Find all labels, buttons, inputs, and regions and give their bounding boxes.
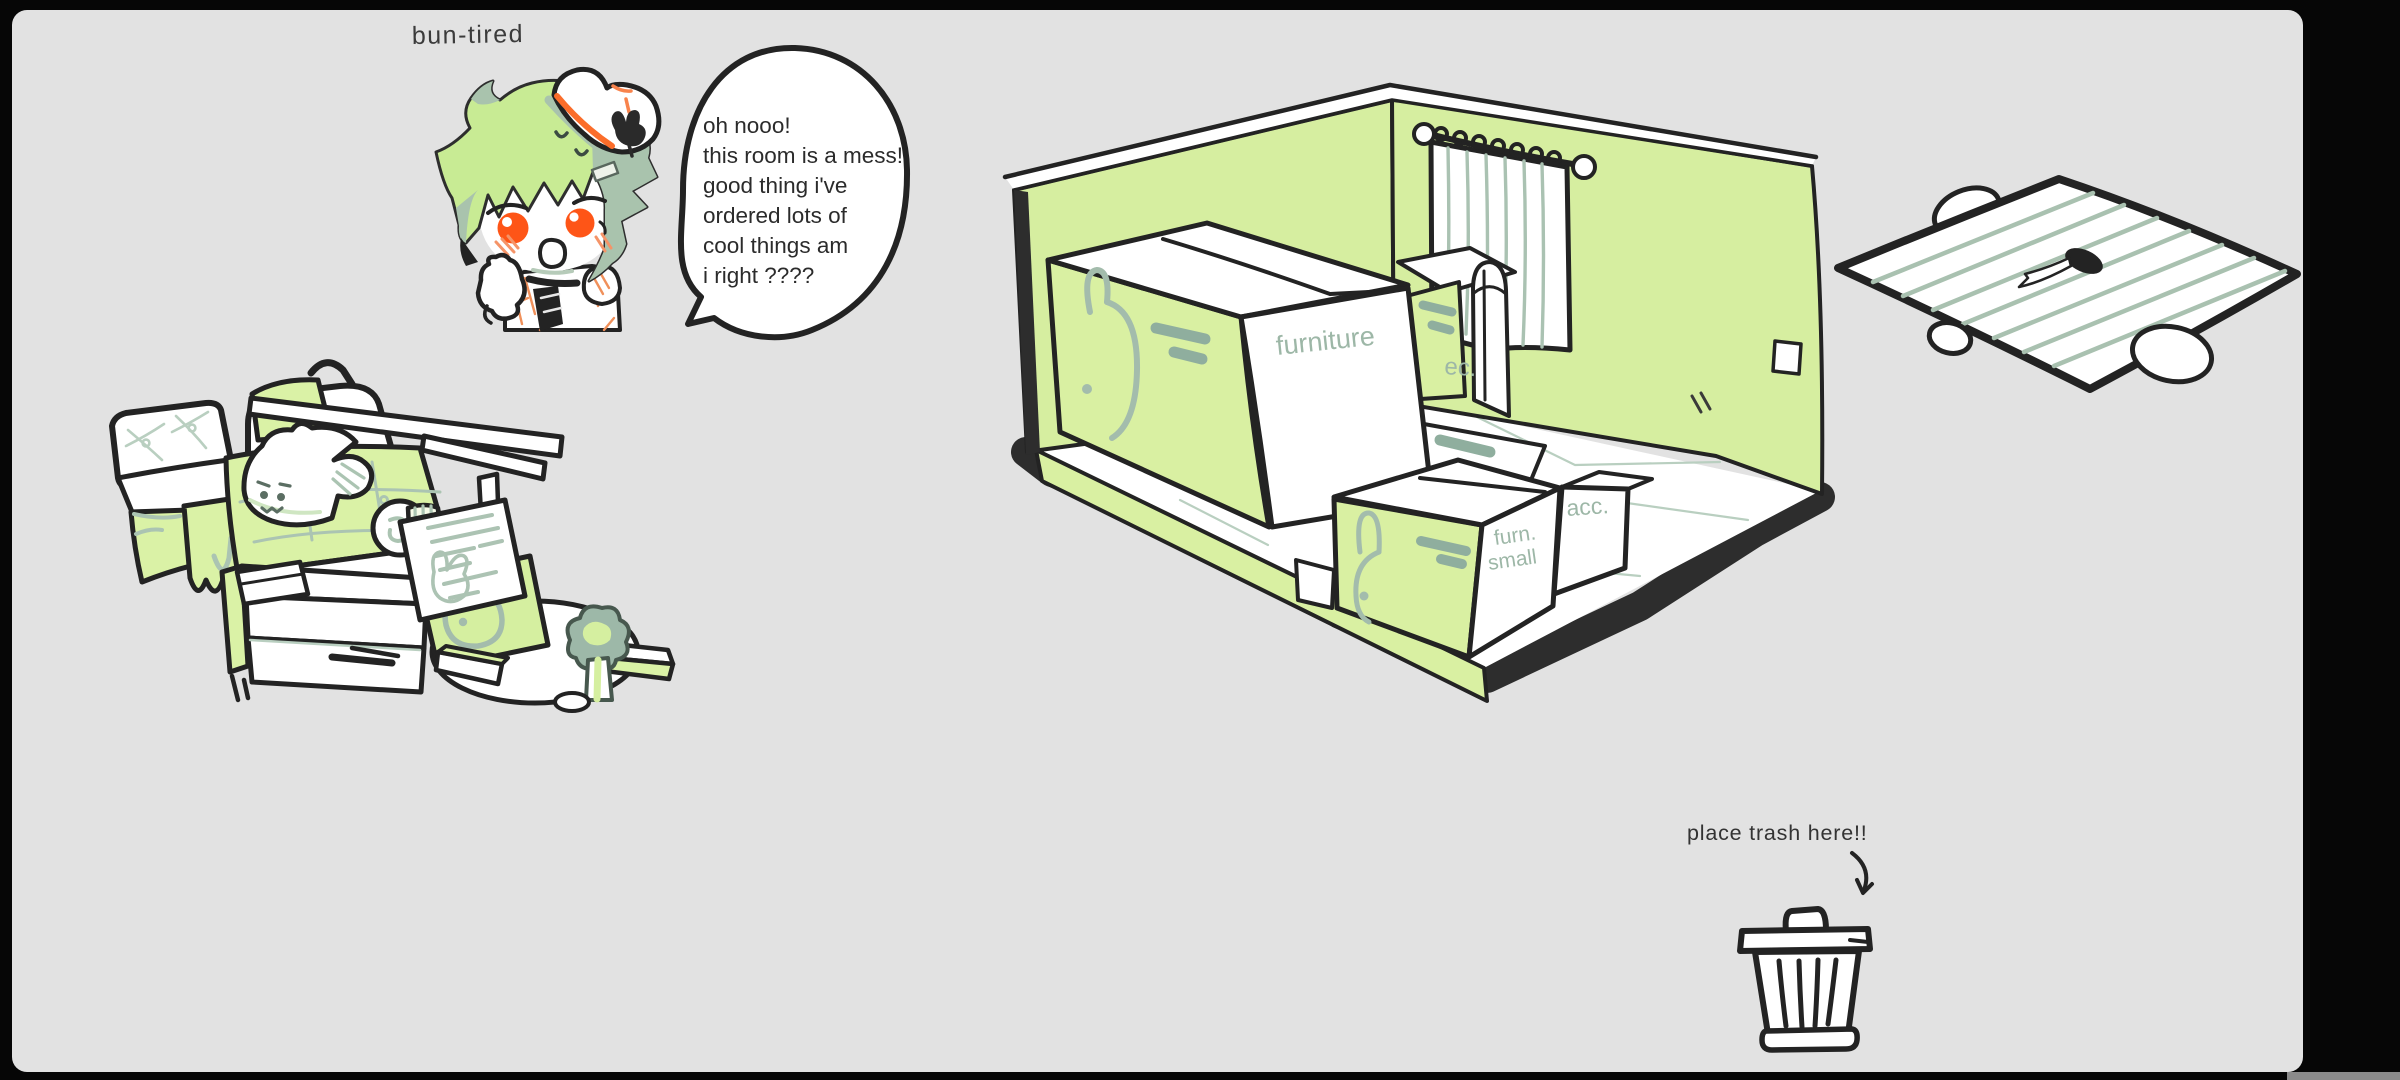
svg-text:cool things am: cool things am [703,233,848,258]
svg-text:acc.: acc. [1566,492,1610,521]
svg-text:bun-tired: bun-tired [412,20,525,50]
svg-text:oh nooo!: oh nooo! [703,113,791,138]
svg-text:ordered lots of: ordered lots of [703,203,848,228]
svg-text:i right ????: i right ???? [703,263,814,288]
svg-text:this room is a mess!: this room is a mess! [703,143,903,168]
svg-text:ec.: ec. [1444,353,1478,382]
svg-text:place trash here!!: place trash here!! [1687,821,1868,845]
svg-text:good thing i've: good thing i've [703,173,847,198]
